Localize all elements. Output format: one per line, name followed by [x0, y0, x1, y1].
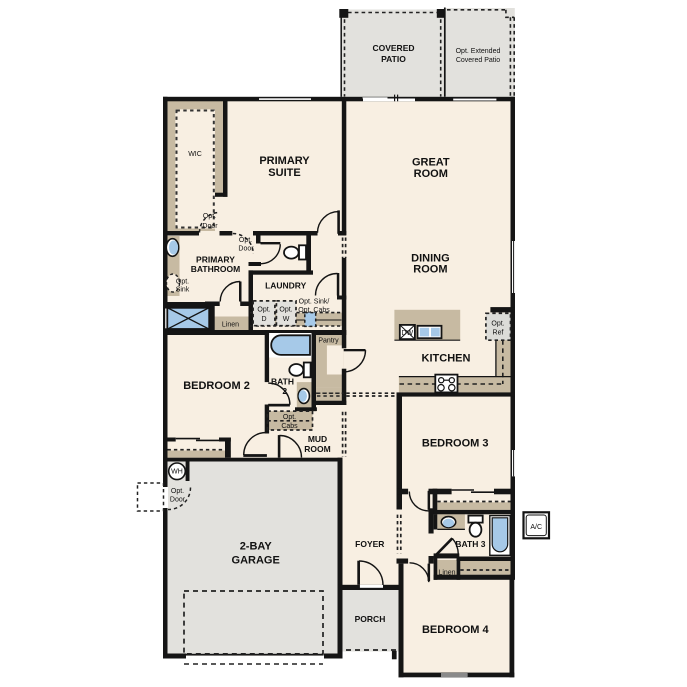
svg-text:Opt. Extended: Opt. Extended: [456, 48, 501, 55]
svg-text:Cabs: Cabs: [281, 423, 298, 430]
svg-text:Pantry: Pantry: [318, 338, 339, 345]
svg-text:BEDROOM 4: BEDROOM 4: [422, 624, 490, 636]
svg-text:DW: DW: [401, 330, 413, 337]
svg-text:Opt.: Opt.: [279, 307, 292, 314]
svg-text:Sink: Sink: [176, 287, 190, 294]
svg-text:LAUNDRY: LAUNDRY: [265, 281, 307, 291]
svg-text:Opt.: Opt.: [176, 279, 189, 286]
svg-text:PATIO: PATIO: [381, 54, 406, 64]
svg-text:Door: Door: [170, 497, 186, 504]
svg-text:Ref: Ref: [493, 330, 504, 337]
svg-text:Opt.: Opt.: [283, 414, 296, 421]
svg-text:GARAGE: GARAGE: [232, 555, 280, 567]
svg-text:BATHROOM: BATHROOM: [191, 264, 240, 274]
svg-text:COVERED: COVERED: [372, 43, 414, 53]
svg-text:Door: Door: [238, 246, 254, 253]
svg-text:BEDROOM 2: BEDROOM 2: [183, 380, 250, 392]
svg-text:2-BAY: 2-BAY: [240, 540, 273, 552]
svg-text:FOYER: FOYER: [355, 539, 384, 549]
svg-text:W: W: [283, 316, 290, 323]
svg-text:Door: Door: [202, 223, 218, 230]
svg-text:PRIMARY: PRIMARY: [259, 155, 310, 167]
svg-text:KITCHEN: KITCHEN: [422, 353, 471, 365]
svg-text:Linen: Linen: [222, 322, 239, 329]
svg-text:Opt.: Opt.: [491, 321, 504, 328]
svg-text:Linen: Linen: [438, 570, 455, 577]
svg-text:SUITE: SUITE: [268, 167, 300, 179]
svg-text:Opt. Sink/: Opt. Sink/: [299, 299, 330, 306]
svg-text:ROOM: ROOM: [414, 168, 448, 180]
svg-text:Opt. Cabs: Opt. Cabs: [298, 307, 330, 314]
svg-text:PORCH: PORCH: [355, 614, 386, 624]
svg-text:Opt.: Opt.: [257, 307, 270, 314]
svg-text:MUD: MUD: [308, 434, 327, 444]
svg-text:BEDROOM 3: BEDROOM 3: [422, 438, 489, 450]
svg-text:D: D: [261, 316, 266, 323]
svg-text:A/C: A/C: [530, 524, 542, 531]
svg-text:2: 2: [282, 386, 287, 396]
svg-text:Opt.: Opt.: [171, 488, 184, 495]
svg-text:BATH: BATH: [271, 377, 294, 387]
svg-text:WIC: WIC: [188, 151, 202, 158]
svg-text:ROOM: ROOM: [413, 264, 447, 276]
svg-text:DINING: DINING: [411, 252, 450, 264]
svg-text:Opt.: Opt.: [203, 213, 216, 220]
svg-text:Covered Patio: Covered Patio: [456, 57, 500, 64]
svg-text:ROOM: ROOM: [304, 444, 330, 454]
svg-text:WH: WH: [171, 469, 183, 476]
svg-text:GREAT: GREAT: [412, 157, 450, 169]
svg-text:PRIMARY: PRIMARY: [196, 254, 235, 264]
svg-text:BATH 3: BATH 3: [455, 539, 485, 549]
svg-text:Opt.: Opt.: [239, 237, 252, 244]
